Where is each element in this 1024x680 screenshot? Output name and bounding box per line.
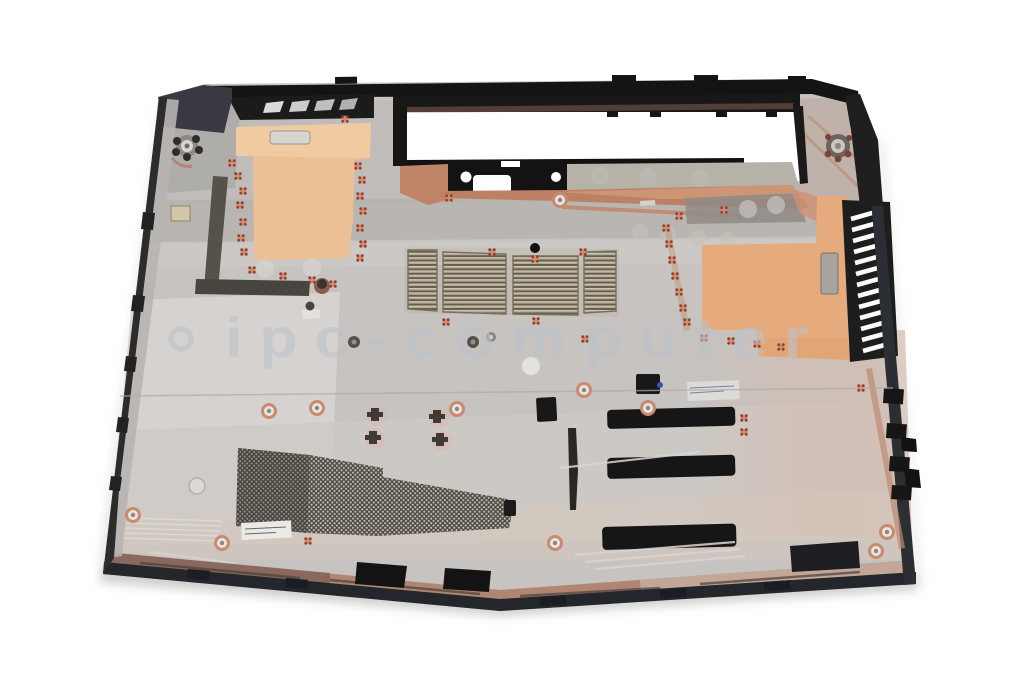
svg-text:ipc-computer: ipc-computer	[225, 306, 825, 369]
